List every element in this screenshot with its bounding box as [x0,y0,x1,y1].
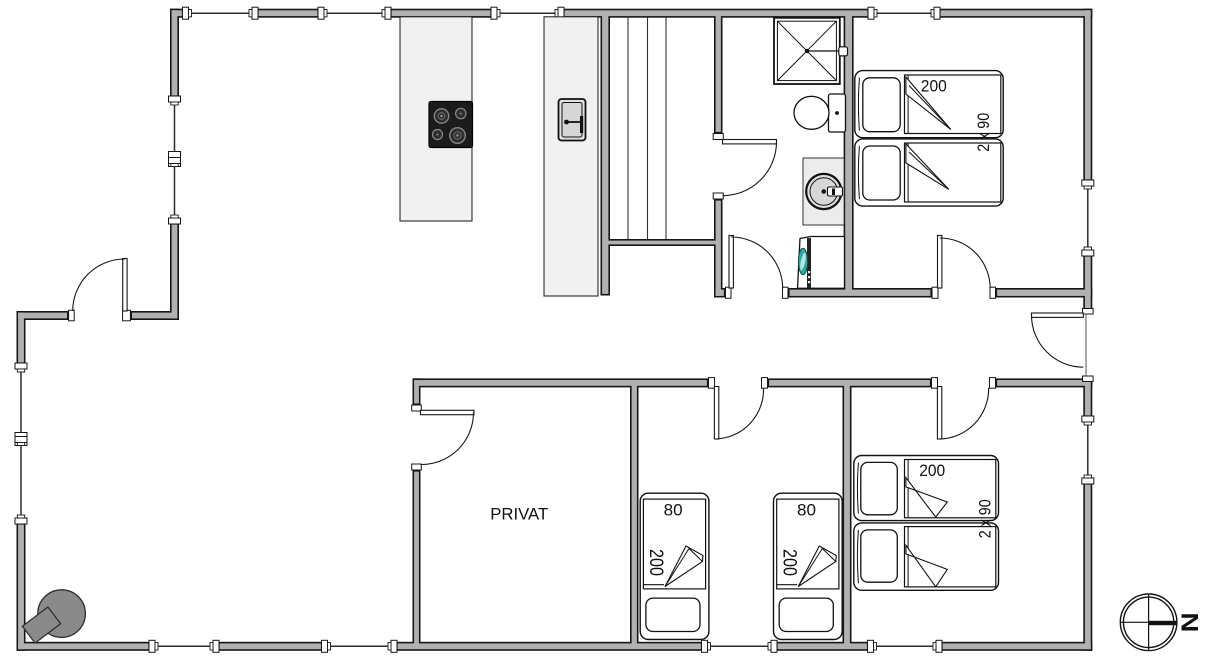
svg-text:200: 200 [778,549,799,576]
svg-text:200: 200 [645,549,666,576]
svg-text:PRIVAT: PRIVAT [490,504,548,523]
svg-text:200: 200 [919,461,945,480]
svg-text:2 x 90: 2 x 90 [974,113,993,152]
svg-text:2 x 90: 2 x 90 [976,499,995,538]
svg-text:80: 80 [797,501,816,520]
svg-text:N: N [1175,612,1202,632]
svg-text:200: 200 [921,77,947,96]
svg-text:80: 80 [664,501,683,520]
